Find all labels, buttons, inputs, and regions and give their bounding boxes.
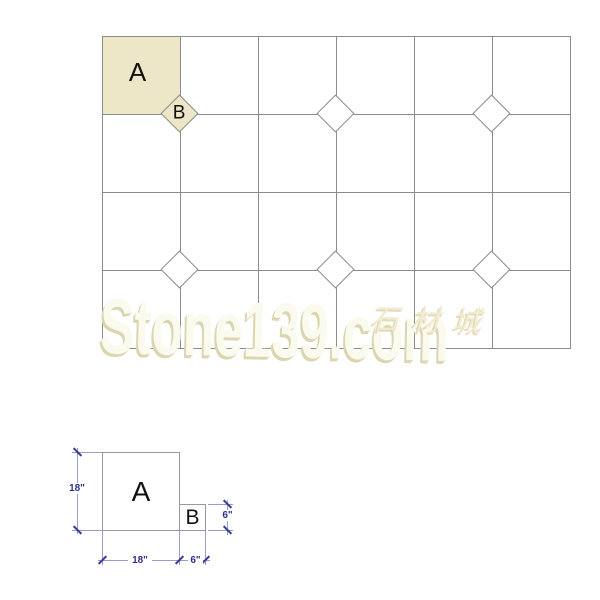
detail-tile-a-label: A: [102, 452, 180, 531]
dimension-label-b-width: 6": [188, 555, 203, 566]
dimension-label-a-height: 18": [66, 483, 88, 494]
dimension-label-a-width: 18": [128, 555, 152, 566]
detail-tile-b-label: B: [179, 504, 206, 531]
tile-detail-drawing: A B 18" 18" 6" 6": [0, 0, 600, 600]
tile-layout-canvas: A B Stone139.com 石材城 A B 18" 18" 6": [0, 0, 600, 600]
dimension-label-b-height: 6": [220, 510, 235, 521]
